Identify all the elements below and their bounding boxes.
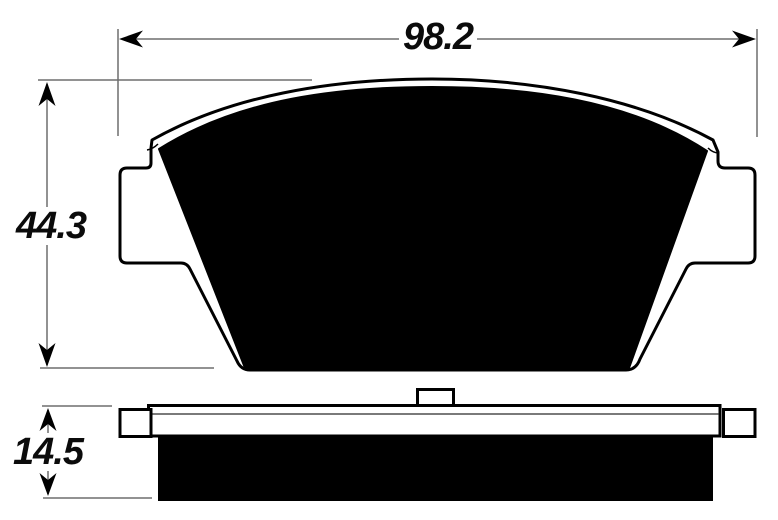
pad-front-friction	[159, 87, 707, 368]
side-plate-right-tab	[724, 410, 756, 437]
dim-height-label: 44.3	[12, 207, 90, 245]
side-friction-block	[158, 437, 713, 501]
side-plate-left-tab	[120, 410, 151, 437]
drawing-canvas	[0, 0, 778, 520]
dim-width-label: 98.2	[399, 18, 477, 56]
front-view	[120, 79, 755, 370]
side-plate	[149, 406, 721, 437]
dim-thickness-label: 14.5	[9, 433, 87, 471]
side-wear-tab	[418, 390, 454, 407]
technical-drawing: 98.2 44.3 14.5	[0, 0, 778, 520]
side-view	[120, 390, 755, 502]
